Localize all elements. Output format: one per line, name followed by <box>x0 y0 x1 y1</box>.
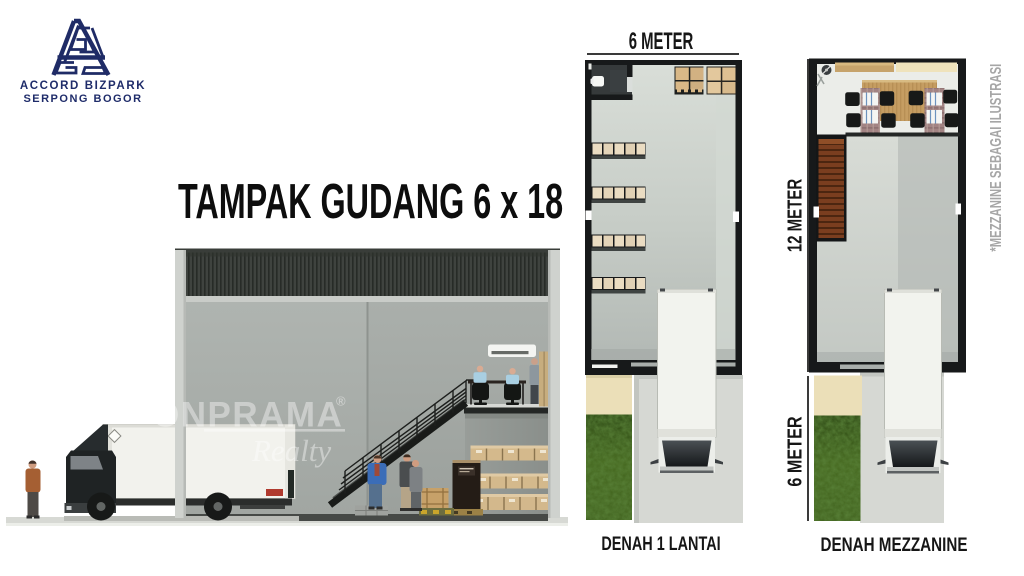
svg-text:®: ® <box>336 394 346 409</box>
svg-text:Realty: Realty <box>251 433 331 468</box>
svg-text:ONPRAMA: ONPRAMA <box>152 396 343 435</box>
